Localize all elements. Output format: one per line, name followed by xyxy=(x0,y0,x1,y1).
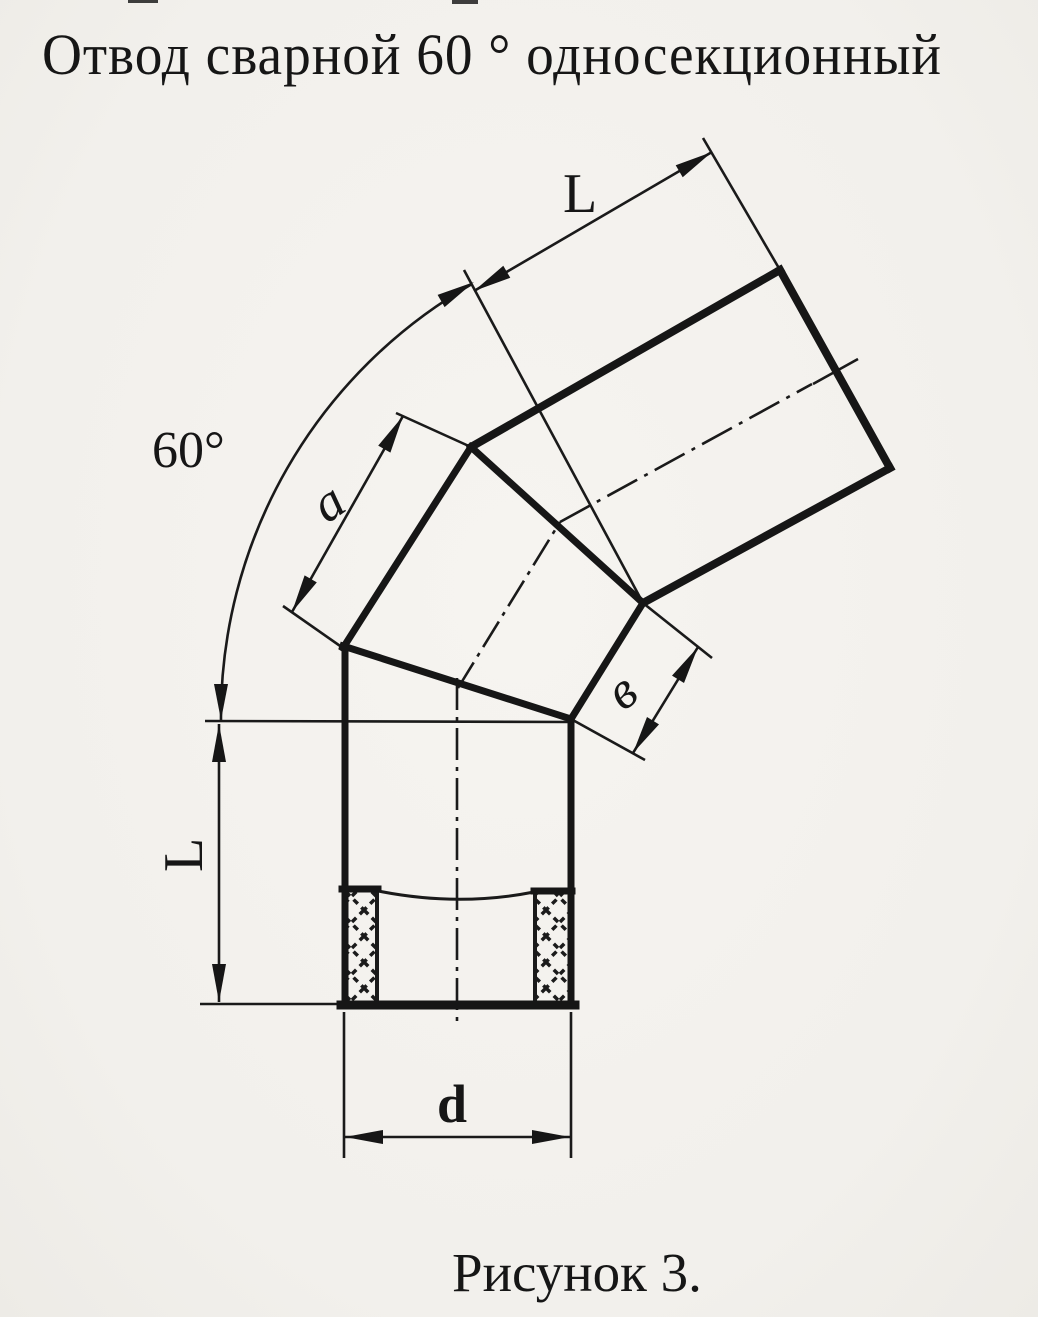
ext-line-v-bottom xyxy=(571,719,645,760)
weld-seam-upper xyxy=(471,447,643,603)
ext-line-v-top xyxy=(643,603,712,658)
arrow-v-top xyxy=(672,647,698,683)
pipe-elbow-outline xyxy=(341,270,890,1005)
top-pipe-end-edge xyxy=(780,270,890,468)
angle-label: 60° xyxy=(152,422,225,479)
arrowheads xyxy=(212,152,712,1144)
dim-label-L-top: L xyxy=(563,163,597,225)
ext-line-L-top-right xyxy=(703,138,780,270)
hatch-right xyxy=(536,892,568,1004)
dim-label-a: a xyxy=(301,471,356,534)
arrow-arc-top xyxy=(438,282,474,307)
dim-label-v: в xyxy=(595,662,649,722)
ext-line-a-top xyxy=(396,413,471,447)
arrow-v-bottom xyxy=(633,717,659,753)
dim-label-L-left: L xyxy=(153,838,215,872)
centerline-middle-section xyxy=(458,522,560,688)
arrow-L-top-left xyxy=(474,266,510,291)
top-pipe-lower-edge xyxy=(643,468,890,603)
middle-section-left-edge xyxy=(343,447,471,648)
centerline-top-pipe xyxy=(560,384,812,522)
arrow-L-left-bottom xyxy=(212,964,226,1002)
arrow-arc-bottom xyxy=(214,684,228,720)
dim-label-d: d xyxy=(437,1074,467,1134)
arrow-L-left-top xyxy=(212,724,226,762)
centerlines xyxy=(457,359,858,1022)
arrow-d-left xyxy=(345,1130,383,1144)
arrow-L-top-right xyxy=(676,152,712,177)
top-pipe-upper-edge xyxy=(471,270,780,447)
arrow-a-top xyxy=(378,416,403,453)
arrow-d-right xyxy=(532,1130,570,1144)
ext-line-a-bottom xyxy=(283,606,343,648)
technical-drawing: Отвод сварной 60 ° односекционный xyxy=(0,0,1038,1317)
ext-line-horizontal xyxy=(205,721,573,722)
hatch-left xyxy=(348,890,377,1004)
scanned-drawing-page: Отвод сварной 60 ° односекционный xyxy=(0,0,1038,1317)
figure-caption: Рисунок 3. xyxy=(452,1242,702,1303)
drawing-title: Отвод сварной 60 ° односекционный xyxy=(42,22,942,87)
arrow-a-bottom xyxy=(292,575,317,612)
